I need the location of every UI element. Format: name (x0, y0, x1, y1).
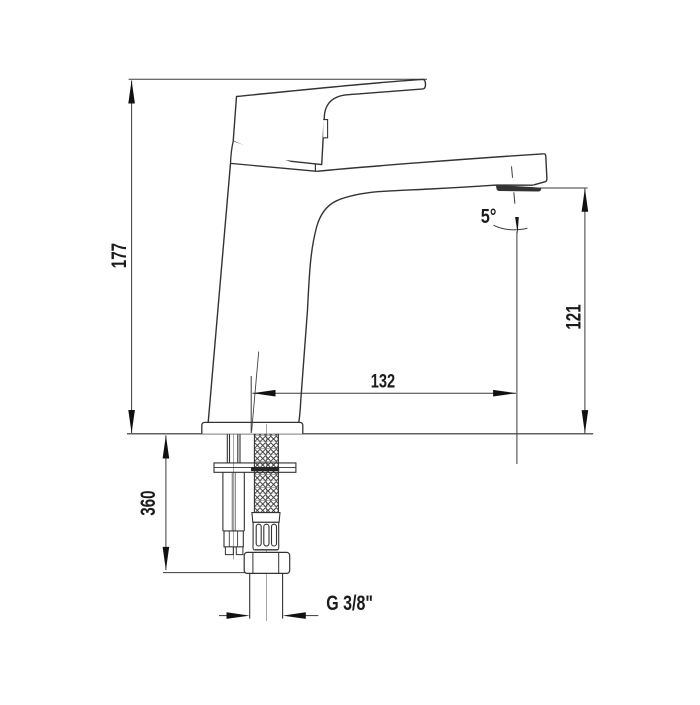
svg-text:G 3/8": G 3/8" (326, 591, 373, 615)
svg-text:5°: 5° (481, 204, 497, 227)
svg-text:121: 121 (561, 304, 585, 329)
svg-text:132: 132 (371, 369, 395, 392)
svg-text:360: 360 (135, 490, 159, 515)
svg-text:177: 177 (106, 243, 130, 268)
